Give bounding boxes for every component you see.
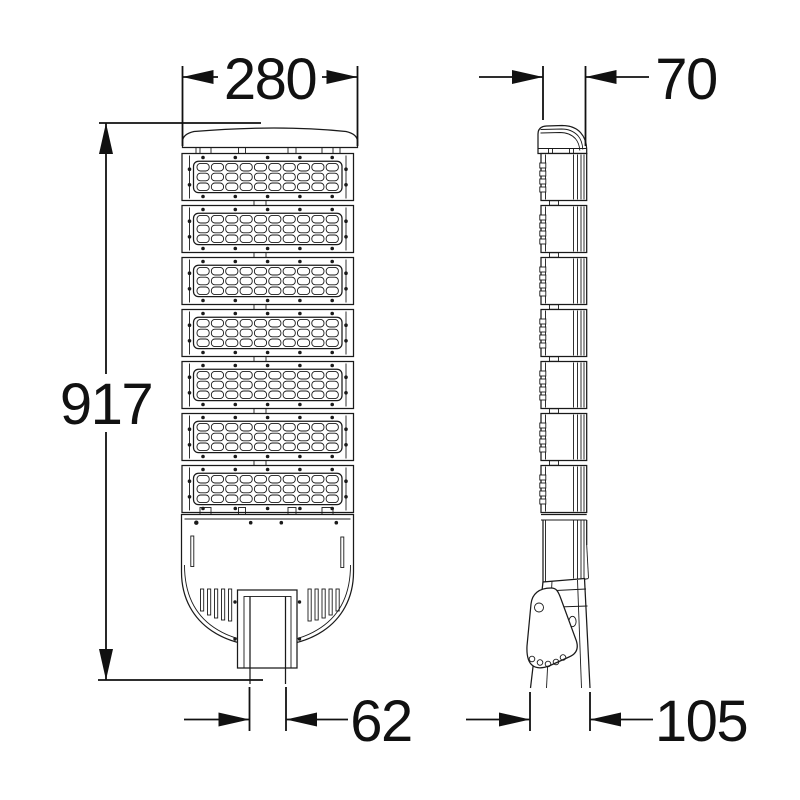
segment-clip <box>540 275 546 280</box>
led-module <box>182 154 354 206</box>
front-top-cover <box>183 128 358 148</box>
pole-bracket-outer <box>238 590 298 668</box>
segment-clip <box>540 423 546 428</box>
side-segment <box>540 414 587 466</box>
segment-clip <box>540 371 546 376</box>
dim-pole-front: 62 <box>184 687 412 754</box>
segment-clip <box>540 163 546 168</box>
segment-clip <box>540 343 546 348</box>
segment-clip <box>540 483 546 488</box>
segment-clip <box>540 499 546 504</box>
segment-clip <box>540 179 546 184</box>
dim-pole-side: 105 <box>466 689 747 754</box>
segment-clip <box>540 239 546 244</box>
segment-clip <box>540 223 546 228</box>
segment-clip <box>540 491 546 496</box>
led-module <box>182 362 354 414</box>
segment-clip <box>540 283 546 288</box>
dim-width-label: 280 <box>224 47 316 112</box>
segment-clip <box>540 267 546 272</box>
dim-depth: 70 <box>479 47 717 146</box>
segment-clip <box>540 215 546 220</box>
segment-clip <box>540 327 546 332</box>
segment-clip <box>540 231 546 236</box>
led-module <box>182 414 354 466</box>
side-view <box>527 126 590 689</box>
segment-clip <box>540 291 546 296</box>
led-modules <box>182 154 354 513</box>
side-segment <box>540 362 587 414</box>
segment-clip <box>540 387 546 392</box>
led-module <box>182 258 354 310</box>
side-segment <box>540 206 587 258</box>
side-top-cover <box>538 126 587 154</box>
side-segments <box>540 154 587 513</box>
segment-clip <box>540 335 546 340</box>
segment-clip <box>540 171 546 176</box>
dim-pole-side-label: 105 <box>655 689 747 754</box>
segment-clip <box>540 447 546 452</box>
side-segment <box>540 154 587 206</box>
front-cover-joint <box>196 148 340 154</box>
segment-clip <box>540 395 546 400</box>
segment-clip <box>540 439 546 444</box>
led-module <box>182 206 354 258</box>
led-module <box>182 310 354 362</box>
dim-pole-front-label: 62 <box>350 689 412 754</box>
segment-clip <box>540 475 546 480</box>
segment-clip <box>540 319 546 324</box>
dimensions: 280 70 917 62 <box>60 47 747 754</box>
segment-clip <box>540 431 546 436</box>
led-module <box>182 466 354 513</box>
segment-clip <box>540 379 546 384</box>
technical-drawing: 280 70 917 62 <box>0 0 800 800</box>
segment-clip <box>540 187 546 192</box>
dim-depth-label: 70 <box>655 47 717 112</box>
pole-mount-front <box>233 590 301 684</box>
front-view <box>182 128 358 684</box>
drawing-canvas: 280 70 917 62 <box>0 0 800 800</box>
side-segment <box>540 466 587 513</box>
side-segment <box>540 310 587 362</box>
dim-height-label: 917 <box>60 372 152 437</box>
side-segment <box>540 258 587 310</box>
